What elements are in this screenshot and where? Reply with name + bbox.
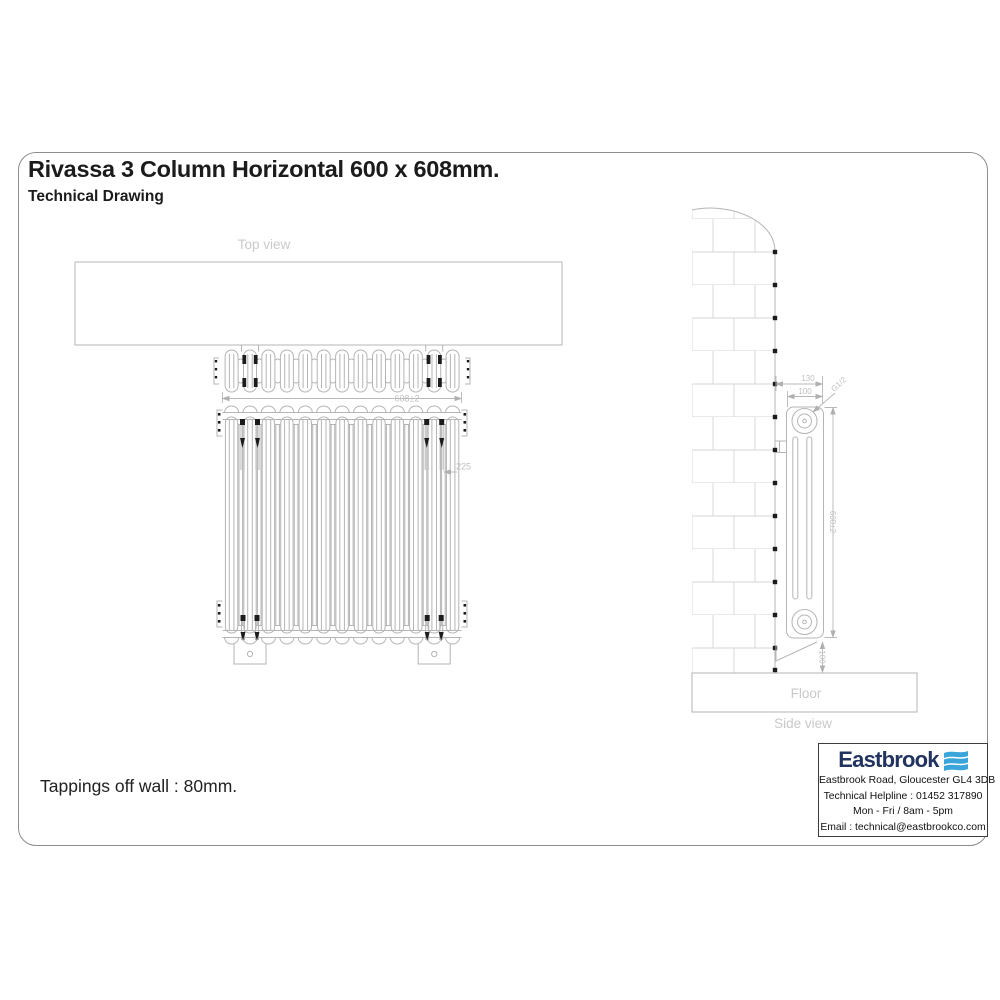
eastbrook-logo: Eastbrook	[819, 747, 987, 773]
helpline-line: Technical Helpline : 01452 317890	[819, 789, 987, 805]
top-view: Top view 608±2	[75, 237, 562, 404]
tapping-size-text: G1/2	[829, 375, 848, 394]
address-line: Eastbrook Road, Gloucester GL4 3DB	[819, 773, 987, 789]
top-view-radiator	[214, 350, 470, 392]
height-dim-text: 600±2	[828, 511, 837, 534]
wall-to-front-dim-text: 130	[801, 374, 815, 383]
top-view-width-dimension: 608±2	[223, 392, 462, 404]
depth-dim-text: 100	[798, 387, 812, 396]
floor-label: Floor	[791, 686, 822, 701]
technical-drawing-page: Rivassa 3 Column Horizontal 600 x 608mm.…	[0, 0, 1000, 1000]
side-view-radiator	[775, 407, 824, 661]
floor-clearance-dim-text: 100	[818, 650, 827, 664]
front-view-bracket-dim-text: 225	[456, 462, 471, 472]
side-view-wall	[692, 208, 777, 673]
side-view-label: Side view	[774, 716, 832, 731]
eastbrook-waves-icon	[944, 750, 968, 771]
email-line: Email : technical@eastbrookco.com	[819, 820, 987, 836]
side-view-foot	[776, 642, 817, 661]
side-view: 130 100 G1/2 600±2 100 Floor Side view	[692, 208, 917, 731]
front-view: 225	[217, 406, 471, 664]
eastbrook-logo-text: Eastbrook	[838, 747, 938, 773]
top-view-label: Top view	[238, 237, 291, 252]
manufacturer-info-box: Eastbrook Eastbrook Road, Gloucester GL4…	[818, 743, 988, 837]
hours-line: Mon - Fri / 8am - 5pm	[819, 804, 987, 820]
drawing-canvas: Top view 608±2	[0, 0, 1000, 1000]
tappings-note: Tappings off wall : 80mm.	[40, 776, 237, 797]
top-view-width-dim-text: 608±2	[395, 394, 420, 404]
top-view-wall	[75, 262, 562, 352]
side-view-floor: Floor	[692, 673, 917, 712]
